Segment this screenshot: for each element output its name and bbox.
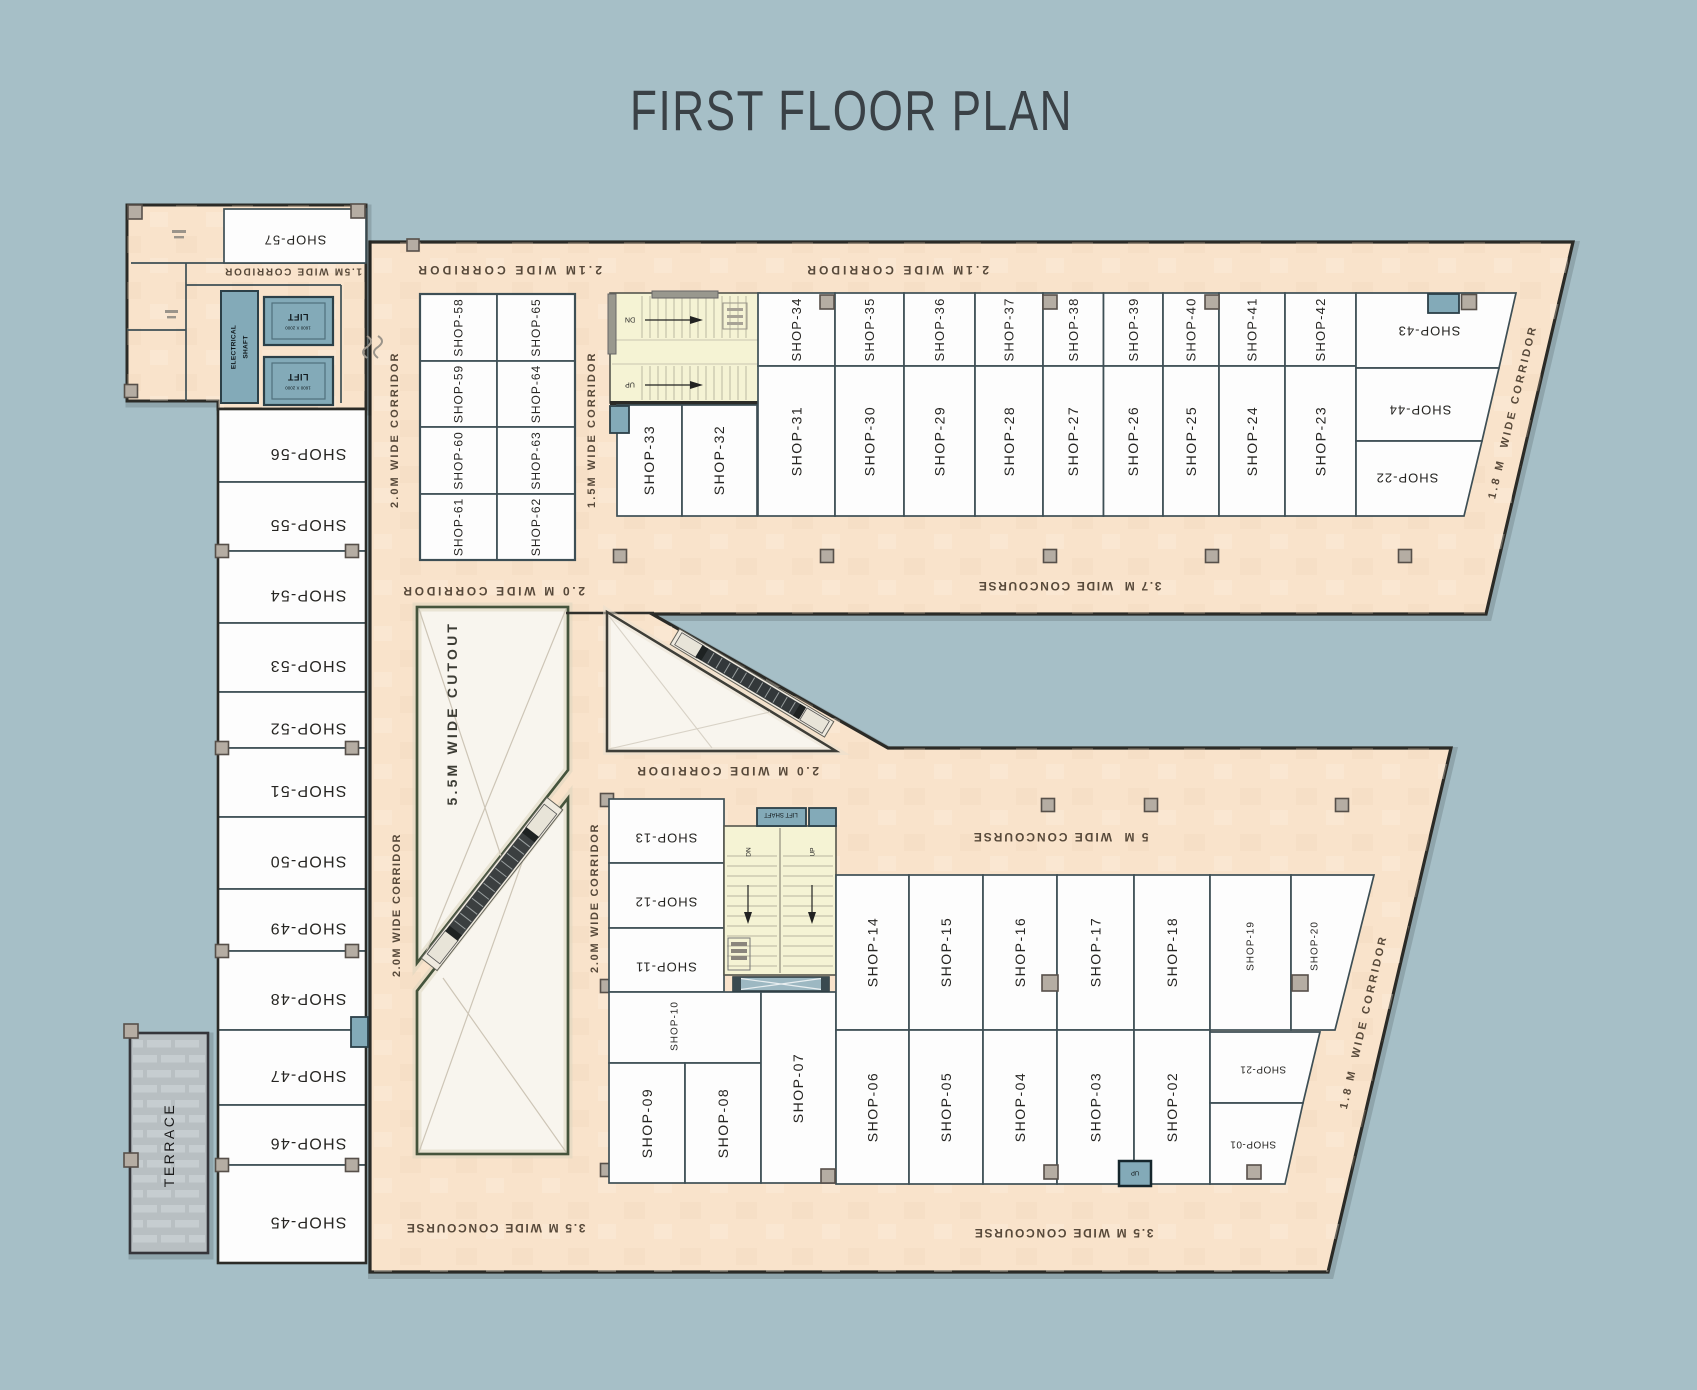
- svg-text:DN: DN: [745, 847, 752, 857]
- svg-text:2.0M WIDE CORRIDOR: 2.0M WIDE CORRIDOR: [589, 823, 601, 973]
- svg-text:5 M WIDE CONCOURSE: 5 M WIDE CONCOURSE: [972, 830, 1149, 844]
- svg-text:SHOP-31: SHOP-31: [788, 406, 804, 476]
- svg-text:SHOP-50: SHOP-50: [270, 852, 347, 869]
- svg-text:DN: DN: [625, 316, 635, 323]
- svg-text:SHOP-52: SHOP-52: [270, 719, 347, 736]
- svg-text:SHOP-34: SHOP-34: [789, 297, 804, 361]
- svg-text:SHOP-49: SHOP-49: [270, 919, 347, 936]
- svg-text:SHOP-40: SHOP-40: [1184, 297, 1199, 361]
- svg-text:SHOP-60: SHOP-60: [452, 431, 466, 489]
- svg-text:3.5 M WIDE CONCOURSE: 3.5 M WIDE CONCOURSE: [973, 1226, 1154, 1240]
- svg-text:SHOP-04: SHOP-04: [1012, 1072, 1028, 1142]
- svg-text:FIRST FLOOR PLAN: FIRST FLOOR PLAN: [630, 79, 1073, 143]
- svg-text:1600 X 2000: 1600 X 2000: [285, 325, 311, 330]
- svg-text:SHOP-36: SHOP-36: [932, 297, 947, 361]
- svg-text:SHOP-35: SHOP-35: [862, 297, 877, 361]
- svg-text:SHOP-25: SHOP-25: [1183, 406, 1199, 476]
- svg-text:SHOP-20: SHOP-20: [1310, 921, 1321, 971]
- svg-text:SHOP-22: SHOP-22: [1376, 470, 1439, 485]
- svg-text:SHOP-57: SHOP-57: [264, 232, 327, 247]
- svg-text:SHOP-06: SHOP-06: [864, 1072, 880, 1142]
- svg-text:SHOP-27: SHOP-27: [1065, 406, 1081, 476]
- svg-text:SHOP-64: SHOP-64: [529, 365, 543, 423]
- svg-text:SHOP-47: SHOP-47: [270, 1067, 347, 1084]
- svg-text:SHOP-21: SHOP-21: [1240, 1064, 1286, 1075]
- svg-text:SHOP-33: SHOP-33: [641, 425, 657, 495]
- svg-text:UP: UP: [809, 847, 816, 856]
- svg-text:SHOP-58: SHOP-58: [452, 298, 466, 356]
- svg-text:SHOP-59: SHOP-59: [452, 365, 466, 423]
- svg-text:SHOP-46: SHOP-46: [270, 1134, 347, 1151]
- svg-text:LIFT: LIFT: [288, 372, 309, 382]
- svg-text:SHOP-48: SHOP-48: [270, 990, 347, 1007]
- svg-text:SHOP-61: SHOP-61: [452, 498, 466, 556]
- svg-text:SHOP-09: SHOP-09: [639, 1088, 655, 1158]
- svg-text:SHOP-14: SHOP-14: [864, 917, 880, 987]
- svg-text:UP: UP: [1131, 1169, 1139, 1175]
- svg-text:SHOP-37: SHOP-37: [1002, 297, 1017, 361]
- svg-text:SHOP-44: SHOP-44: [1389, 402, 1452, 417]
- svg-text:2.0M WIDE CORRIDOR: 2.0M WIDE CORRIDOR: [391, 833, 403, 977]
- svg-text:1600 X 2000: 1600 X 2000: [285, 385, 311, 390]
- svg-text:SHOP-05: SHOP-05: [938, 1072, 954, 1142]
- svg-text:SHOP-12: SHOP-12: [635, 894, 698, 909]
- svg-text:SHOP-53: SHOP-53: [270, 657, 347, 674]
- svg-text:SHOP-41: SHOP-41: [1245, 297, 1260, 361]
- svg-text:SHOP-55: SHOP-55: [270, 516, 347, 533]
- svg-text:SHOP-08: SHOP-08: [715, 1088, 731, 1158]
- svg-text:1.5M WIDE CORRIDOR: 1.5M WIDE CORRIDOR: [586, 352, 598, 508]
- svg-text:SHOP-51: SHOP-51: [270, 782, 347, 799]
- svg-text:SHOP-16: SHOP-16: [1012, 917, 1028, 987]
- svg-text:2.1M WIDE CORRIDOR: 2.1M WIDE CORRIDOR: [416, 263, 602, 277]
- svg-text:SHOP-26: SHOP-26: [1125, 406, 1141, 476]
- svg-text:SHOP-01: SHOP-01: [1230, 1139, 1276, 1150]
- svg-text:SHOP-10: SHOP-10: [670, 1001, 681, 1051]
- svg-text:SHOP-17: SHOP-17: [1087, 917, 1103, 987]
- svg-text:3.5 M WIDE CONCOURSE: 3.5 M WIDE CONCOURSE: [405, 1221, 586, 1235]
- svg-text:2.1M WIDE CORRIDOR: 2.1M WIDE CORRIDOR: [805, 263, 989, 277]
- svg-text:SHOP-28: SHOP-28: [1001, 406, 1017, 476]
- svg-text:SHOP-54: SHOP-54: [270, 586, 347, 603]
- svg-text:LIFT: LIFT: [288, 312, 309, 322]
- svg-text:SHOP-02: SHOP-02: [1164, 1072, 1180, 1142]
- svg-text:SHOP-24: SHOP-24: [1244, 406, 1260, 476]
- svg-text:UP: UP: [625, 381, 635, 388]
- svg-text:SHOP-13: SHOP-13: [635, 830, 698, 845]
- svg-text:SHOP-03: SHOP-03: [1087, 1072, 1103, 1142]
- svg-text:ELECTRICAL: ELECTRICAL: [230, 325, 237, 369]
- svg-text:SHOP-63: SHOP-63: [529, 431, 543, 489]
- svg-text:SHOP-45: SHOP-45: [270, 1213, 347, 1230]
- svg-text:SHOP-56: SHOP-56: [270, 445, 347, 462]
- svg-text:2.0 M WIDE CORRIDOR: 2.0 M WIDE CORRIDOR: [635, 764, 819, 778]
- svg-text:2.0 M WIDE CORRIDOR: 2.0 M WIDE CORRIDOR: [401, 584, 585, 598]
- svg-text:1.5M WIDE CORRIDOR: 1.5M WIDE CORRIDOR: [224, 266, 362, 277]
- svg-text:SHAFT: SHAFT: [242, 335, 249, 358]
- svg-text:SHOP-43: SHOP-43: [1398, 323, 1461, 338]
- svg-text:2.0M WIDE CORRIDOR: 2.0M WIDE CORRIDOR: [389, 352, 401, 508]
- svg-text:SHOP-32: SHOP-32: [711, 425, 727, 495]
- svg-text:SHOP-18: SHOP-18: [1164, 917, 1180, 987]
- svg-text:SHOP-30: SHOP-30: [861, 406, 877, 476]
- svg-text:SHOP-38: SHOP-38: [1066, 297, 1081, 361]
- svg-text:LIFT SHAFT: LIFT SHAFT: [764, 811, 798, 817]
- svg-text:SHOP-23: SHOP-23: [1312, 406, 1328, 476]
- svg-text:SHOP-07: SHOP-07: [790, 1053, 806, 1123]
- svg-text:SHOP-42: SHOP-42: [1313, 297, 1328, 361]
- svg-text:TERRACE: TERRACE: [161, 1103, 177, 1187]
- svg-text:3.7 M WIDE CONCOURSE: 3.7 M WIDE CONCOURSE: [977, 579, 1162, 593]
- svg-text:SHOP-15: SHOP-15: [938, 917, 954, 987]
- svg-text:SHOP-29: SHOP-29: [931, 406, 947, 476]
- svg-text:SHOP-11: SHOP-11: [635, 959, 697, 974]
- svg-text:SHOP-65: SHOP-65: [529, 298, 543, 356]
- svg-text:SHOP-39: SHOP-39: [1126, 297, 1141, 361]
- svg-text:SHOP-62: SHOP-62: [529, 498, 543, 556]
- svg-text:SHOP-19: SHOP-19: [1246, 921, 1257, 971]
